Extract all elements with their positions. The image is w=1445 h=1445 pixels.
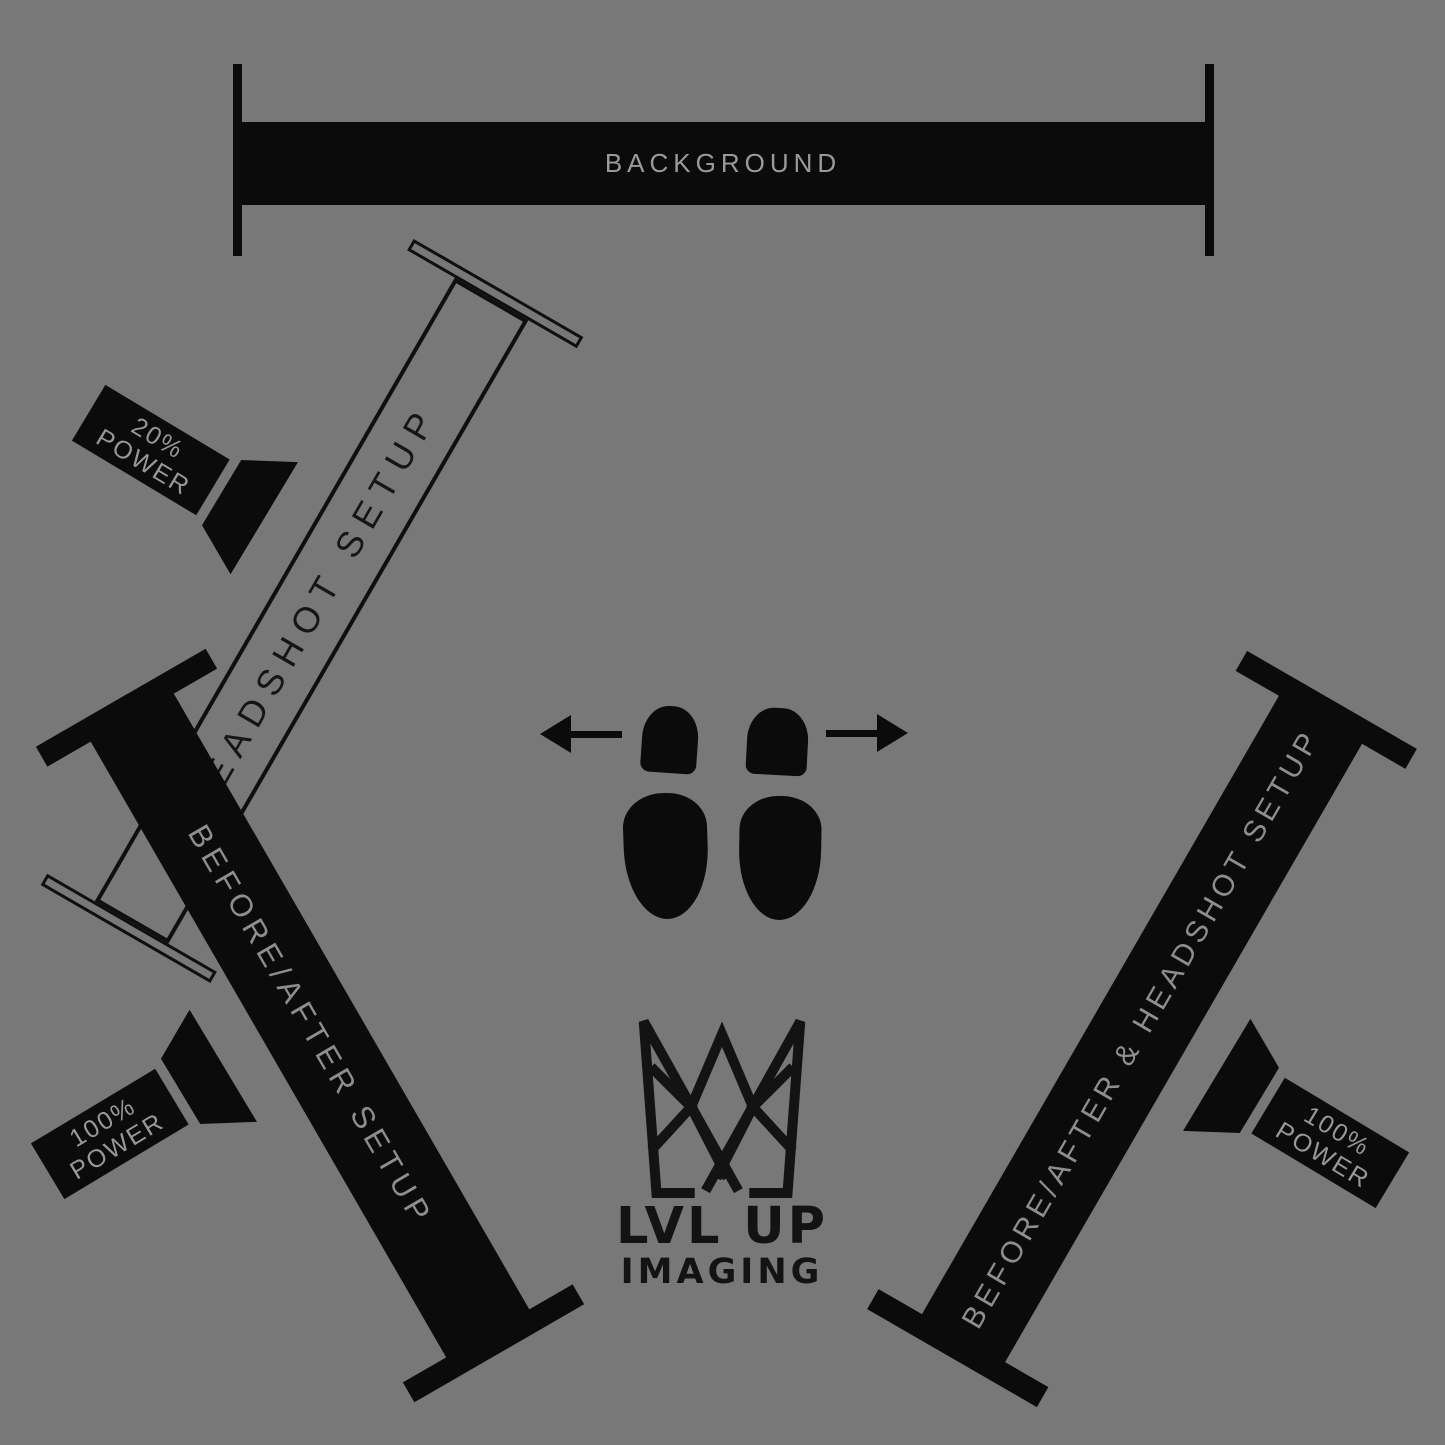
logo-name: LVL UP <box>592 1201 852 1252</box>
right-foot-heel-icon <box>745 706 809 776</box>
backdrop-label: BACKGROUND <box>605 148 841 179</box>
backdrop-stand: BACKGROUND <box>233 64 1214 256</box>
combo-stand-pole: BEFORE/AFTER & HEADSHOT SETUP <box>916 685 1368 1372</box>
combo-stand: BEFORE/AFTER & HEADSHOT SETUP <box>867 651 1417 1407</box>
left-foot-sole-icon <box>622 792 710 921</box>
fill-light-right-body: 100% POWER <box>1251 1078 1409 1208</box>
lighting-diagram: BACKGROUND HEADSHOT SETUP BEFORE/AFTER S… <box>0 0 1445 1445</box>
logo-subname: IMAGING <box>592 1255 852 1290</box>
key-light-body: 20% POWER <box>72 385 230 515</box>
before-after-stand-label: BEFORE/AFTER SETUP <box>180 818 440 1232</box>
left-foot-heel-icon <box>640 704 701 775</box>
fill-light-left-body: 100% POWER <box>31 1069 189 1199</box>
move-right-arrow-icon <box>826 714 908 752</box>
logo-text: LVL UP IMAGING <box>592 1201 852 1290</box>
crown-logo-icon <box>631 1014 813 1200</box>
right-foot-sole-icon <box>738 795 822 920</box>
combo-stand-label: BEFORE/AFTER & HEADSHOT SETUP <box>956 723 1329 1334</box>
move-left-arrow-icon <box>540 715 622 753</box>
backdrop-bar: BACKGROUND <box>237 122 1209 205</box>
